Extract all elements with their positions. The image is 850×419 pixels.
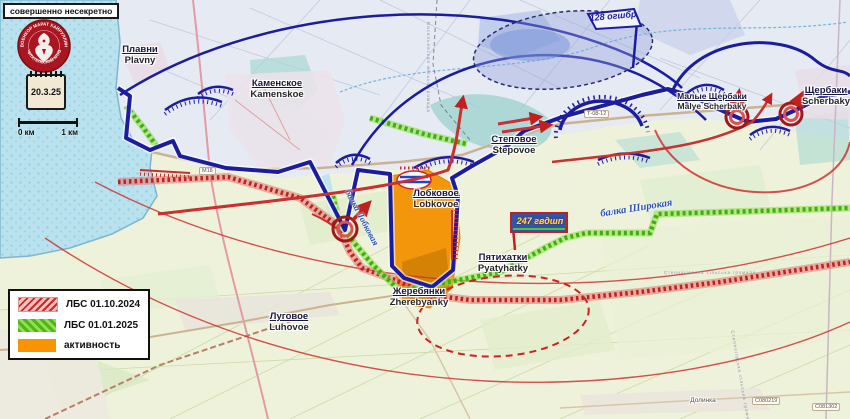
scale-bar-line [18,118,78,127]
legend-swatch-green-check [18,319,56,332]
settlement-label-malye-scherbaky: Малые Щербаки Malye Scherbaky [677,91,747,111]
scale-zero-label: 0 км [18,128,35,137]
settlement-label-dolynka: Долинка [690,397,716,405]
unit-area-128-core [490,29,570,61]
settlement-label-lobkovoe: Лобковое Lobkovoe [413,188,459,211]
settlement-label-pyatyhatky: Пятихатки Pyatyhatky [478,252,528,275]
legend-item-lbs-2025: ЛБС 01.01.2025 [18,319,140,332]
legend-swatch-red-hatch [18,297,58,312]
date-stamp: 20.3.25 [26,74,66,110]
situation-map: Плавни Plavny Каменское Kamenskoe Степов… [0,0,850,419]
road-shield-t0812: Т-08-12 [584,110,609,118]
scale-bar: 0 км 1 км [18,118,78,137]
admin-label-vasylivska: Васильевская міська громада [426,22,431,113]
settlement-label-zherebyanky: Жеребянки Zherebyanky [390,286,449,309]
settlement-label-kamenskoe: Каменское Kamenskoe [250,78,303,101]
legend-item-activity: активность [18,339,140,352]
unit-label-247: 247 гвдшп [513,216,567,226]
road-shield-c081302: С081302 [812,403,840,411]
road-shield-m18: М18 [199,167,216,175]
settlement-label-plavny: Плавни Plavny [122,44,158,67]
club-emblem: ВОЕНКОР МАРАТ ХАЙРУЛЛИН ЧИТАТЕЛЬСКИЙ КЛУ… [17,19,71,73]
map-legend: ЛБС 01.10.2024 ЛБС 01.01.2025 активность [8,289,150,360]
scale-one-label: 1 км [61,128,78,137]
settlement-label-luhovoe: Луговое Luhovoe [269,311,309,334]
classification-stamp: совершенно несекретно [3,3,119,19]
road-shield-c080219: С080219 [752,397,780,405]
admin-label-stepnohirska: Степногірська сільська громада [664,270,756,275]
settlement-label-stepovoe: Степовое Stepovoe [491,134,536,157]
settlement-label-scherbaky: Щербаки Scherbaky [802,85,850,108]
club-emblem-graphic: ВОЕНКОР МАРАТ ХАЙРУЛЛИН ЧИТАТЕЛЬСКИЙ КЛУ… [17,19,71,73]
legend-item-lbs-2024: ЛБС 01.10.2024 [18,297,140,312]
legend-swatch-orange [18,339,56,352]
